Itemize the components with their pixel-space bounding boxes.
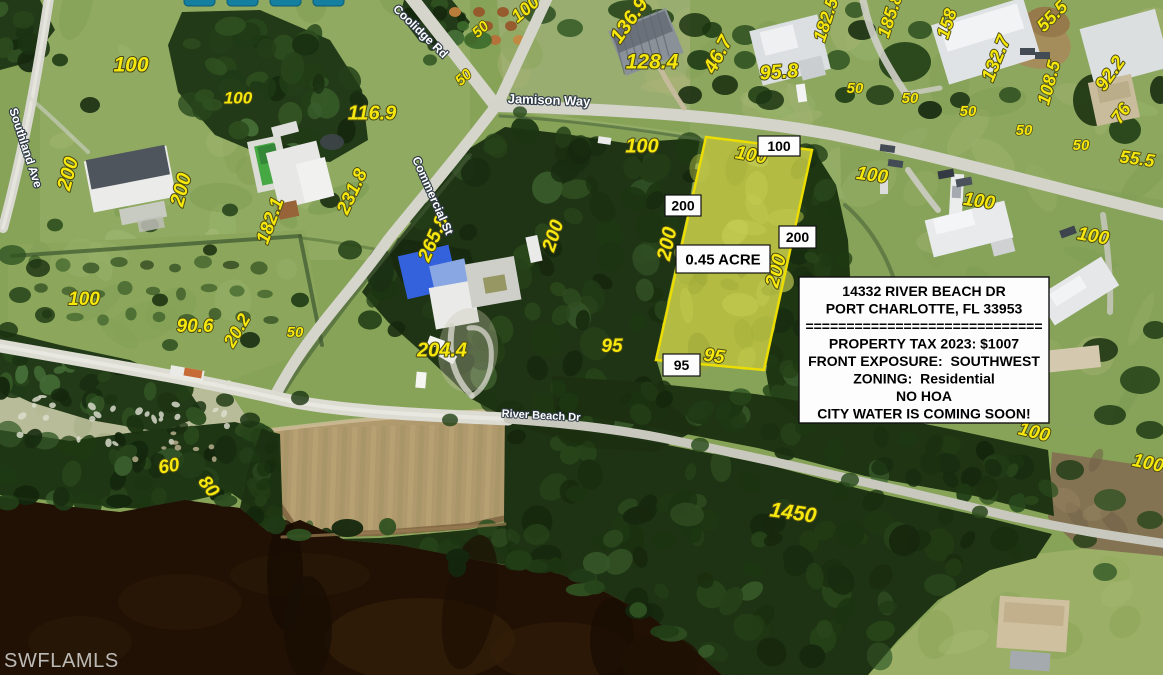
svg-text:128.4: 128.4 xyxy=(626,51,679,74)
svg-text:55.5: 55.5 xyxy=(1033,0,1073,36)
svg-text:132.7: 132.7 xyxy=(978,32,1016,85)
svg-text:PORT CHARLOTTE, FL 33953: PORT CHARLOTTE, FL 33953 xyxy=(826,301,1023,317)
svg-text:76: 76 xyxy=(1107,99,1135,128)
svg-text:Coolidge Rd: Coolidge Rd xyxy=(390,2,451,61)
svg-text:1450: 1450 xyxy=(768,498,818,527)
svg-text:0.45 ACRE: 0.45 ACRE xyxy=(685,251,760,268)
svg-text:50: 50 xyxy=(902,90,919,107)
svg-text:50: 50 xyxy=(1073,137,1090,154)
svg-text:SWFLAMLS: SWFLAMLS xyxy=(4,650,119,672)
svg-text:100: 100 xyxy=(1130,450,1163,477)
svg-text:182.5: 182.5 xyxy=(809,0,842,44)
svg-text:46.7: 46.7 xyxy=(699,32,738,78)
svg-text:92.2: 92.2 xyxy=(1091,52,1130,95)
svg-text:200: 200 xyxy=(166,171,196,210)
svg-text:50: 50 xyxy=(1016,122,1033,139)
svg-text:55.5: 55.5 xyxy=(1118,146,1156,171)
svg-text:95: 95 xyxy=(674,357,690,373)
svg-text:95: 95 xyxy=(702,345,726,369)
svg-text:100: 100 xyxy=(507,0,543,26)
svg-text:50: 50 xyxy=(847,80,864,97)
svg-text:200: 200 xyxy=(53,155,83,194)
svg-text:14332 RIVER BEACH DR: 14332 RIVER BEACH DR xyxy=(842,283,1005,299)
svg-text:100: 100 xyxy=(224,88,253,107)
svg-text:FRONT EXPOSURE: SOUTHWEST: FRONT EXPOSURE: SOUTHWEST xyxy=(808,353,1040,369)
svg-text:100: 100 xyxy=(855,163,890,188)
svg-text:50: 50 xyxy=(469,17,493,41)
svg-text:100: 100 xyxy=(767,138,791,154)
svg-text:185.8: 185.8 xyxy=(873,0,906,40)
svg-text:100: 100 xyxy=(962,189,997,214)
svg-text:200: 200 xyxy=(786,229,810,245)
svg-text:158: 158 xyxy=(933,6,961,41)
svg-text:Jamison Way: Jamison Way xyxy=(507,91,591,109)
svg-text:NO HOA: NO HOA xyxy=(896,388,952,404)
svg-text:River Beach Dr: River Beach Dr xyxy=(501,408,581,424)
svg-text:100: 100 xyxy=(625,135,658,157)
svg-text:200: 200 xyxy=(671,198,695,214)
svg-text:Southland Ave: Southland Ave xyxy=(6,106,45,190)
svg-text:200: 200 xyxy=(538,217,568,255)
svg-text:50: 50 xyxy=(452,65,476,89)
svg-text:20.2: 20.2 xyxy=(219,310,254,351)
svg-text:136.9: 136.9 xyxy=(606,0,653,47)
svg-text:95.8: 95.8 xyxy=(759,60,800,85)
svg-text:ZONING: Residential: ZONING: Residential xyxy=(853,371,995,387)
svg-text:95: 95 xyxy=(601,336,623,357)
svg-text:60: 60 xyxy=(157,454,182,478)
svg-text:50: 50 xyxy=(960,103,977,120)
svg-text:182.1: 182.1 xyxy=(253,195,289,247)
svg-text:100: 100 xyxy=(1076,223,1111,249)
svg-text:90.6: 90.6 xyxy=(177,316,214,337)
svg-text:PROPERTY TAX 2023: $1007: PROPERTY TAX 2023: $1007 xyxy=(829,336,1019,352)
svg-text:108.5: 108.5 xyxy=(1033,57,1064,107)
svg-text:204.4: 204.4 xyxy=(416,339,467,361)
svg-text:100: 100 xyxy=(68,289,100,310)
svg-text:80: 80 xyxy=(194,472,224,502)
svg-text:116.9: 116.9 xyxy=(348,102,397,124)
svg-text:100: 100 xyxy=(113,54,148,77)
svg-text:=============================: ============================= xyxy=(805,318,1042,334)
svg-text:CITY WATER IS COMING SOON!: CITY WATER IS COMING SOON! xyxy=(817,406,1030,422)
svg-text:231.8: 231.8 xyxy=(333,165,373,218)
svg-text:50: 50 xyxy=(287,324,304,341)
